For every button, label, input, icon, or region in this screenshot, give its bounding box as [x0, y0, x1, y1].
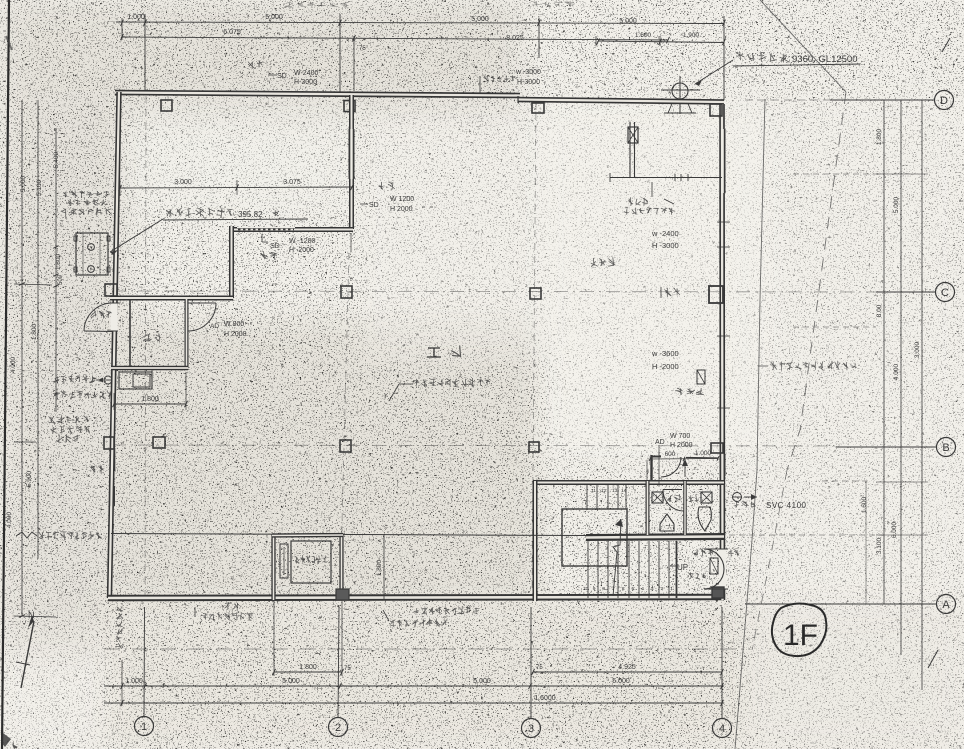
svg-text:1.000: 1.000 [695, 450, 712, 457]
svg-text:3: 3 [651, 586, 654, 592]
svg-text:4.000: 4.000 [10, 356, 17, 373]
svg-text:AD: AD [655, 439, 665, 446]
svg-text:4: 4 [641, 586, 644, 592]
svg-text:A: A [942, 599, 950, 611]
svg-text:SD: SD [369, 202, 379, 209]
svg-text:SD: SD [277, 73, 287, 80]
svg-text:500: 500 [58, 274, 64, 285]
svg-text:3.000: 3.000 [174, 179, 192, 186]
svg-text:3.075: 3.075 [283, 179, 301, 186]
svg-text:5.000: 5.000 [612, 678, 630, 685]
svg-text:5.000: 5.000 [471, 16, 489, 23]
svg-text:D: D [940, 95, 948, 107]
svg-text:1.600: 1.600 [861, 496, 868, 513]
svg-text:75: 75 [536, 665, 543, 671]
svg-text:12: 12 [601, 488, 607, 494]
svg-text:N: N [28, 610, 35, 620]
svg-text:w -3000: w -3000 [515, 69, 541, 76]
svg-text:1.800: 1.800 [141, 396, 159, 403]
svg-text:3.100: 3.100 [876, 537, 883, 554]
svg-text:5.000: 5.000 [265, 14, 283, 21]
svg-text:w -3600: w -3600 [651, 349, 679, 358]
svg-text:5: 5 [632, 586, 635, 592]
svg-text:6.000: 6.000 [891, 521, 898, 538]
svg-text:4: 4 [719, 723, 725, 735]
svg-text:1.800: 1.800 [31, 323, 38, 340]
svg-text:UP: UP [677, 563, 688, 572]
svg-text:W 1200: W 1200 [390, 196, 414, 203]
svg-text:2: 2 [661, 586, 664, 592]
svg-text:W 800: W 800 [224, 321, 244, 328]
svg-text:SVC 4100: SVC 4100 [766, 501, 807, 510]
svg-text:75: 75 [344, 666, 351, 672]
svg-text:3: 3 [528, 723, 534, 735]
svg-text:1.900: 1.900 [683, 32, 700, 39]
svg-text:2: 2 [335, 722, 341, 734]
svg-text:5.000: 5.000 [473, 678, 491, 685]
svg-text:8.025: 8.025 [506, 35, 524, 42]
svg-text:5.400: 5.400 [53, 151, 60, 168]
svg-text:5.100: 5.100 [36, 179, 43, 196]
svg-text:1.000: 1.000 [127, 14, 145, 21]
svg-text:C: C [941, 287, 949, 299]
svg-text:1.800: 1.800 [299, 664, 317, 671]
svg-text:B: B [942, 442, 949, 454]
svg-text:1F: 1F [783, 619, 818, 652]
svg-text:1: 1 [670, 586, 673, 592]
svg-text:H 2000: H 2000 [670, 442, 693, 449]
svg-text:H -2000: H -2000 [289, 247, 314, 254]
svg-text:1.600: 1.600 [635, 32, 652, 39]
svg-text:1.800: 1.800 [376, 559, 383, 576]
svg-text:W-2400: W-2400 [294, 70, 318, 77]
svg-text:H 2000: H 2000 [390, 206, 413, 213]
svg-text:5.900: 5.900 [26, 470, 33, 487]
svg-text:6.075: 6.075 [223, 29, 241, 36]
svg-text:5.000: 5.000 [20, 175, 27, 192]
svg-text:6: 6 [622, 586, 625, 592]
svg-text:4.000: 4.000 [6, 511, 13, 528]
svg-text:75: 75 [359, 46, 366, 52]
svg-text:8.00: 8.00 [876, 304, 883, 317]
svg-text:14: 14 [621, 488, 627, 494]
svg-text:AD: AD [210, 323, 219, 330]
svg-text:1.000: 1.000 [125, 678, 143, 685]
svg-text:H-3000: H-3000 [517, 79, 540, 86]
svg-text:1: 1 [141, 721, 147, 733]
svg-text:3.000: 3.000 [914, 341, 921, 358]
svg-text:1.800: 1.800 [876, 128, 883, 145]
svg-text:w -2400: w -2400 [651, 229, 679, 238]
svg-text:H -2000: H -2000 [652, 362, 679, 371]
svg-text:1.6000: 1.6000 [534, 695, 556, 702]
svg-text:SD: SD [270, 243, 280, 250]
svg-text:9360. GL12500: 9360. GL12500 [792, 54, 858, 65]
svg-text:W 700: W 700 [670, 433, 690, 440]
svg-text:5.000: 5.000 [893, 196, 900, 213]
svg-text:13: 13 [612, 488, 618, 494]
svg-text:5.000: 5.000 [282, 678, 300, 685]
svg-text:600: 600 [665, 451, 676, 458]
svg-text:9: 9 [593, 586, 596, 592]
svg-text:11: 11 [591, 488, 596, 494]
svg-text:5.000: 5.000 [619, 18, 637, 25]
svg-text:4.925: 4.925 [618, 664, 636, 671]
svg-text:H-3000: H-3000 [294, 79, 317, 86]
svg-text:H 2000: H 2000 [224, 331, 247, 338]
svg-text:H -3000: H -3000 [652, 241, 679, 250]
svg-text:10: 10 [583, 586, 589, 592]
svg-text:W -1200: W -1200 [289, 238, 316, 245]
svg-text:4.000: 4.000 [893, 363, 900, 380]
svg-text:1.800: 1.800 [55, 253, 62, 270]
svg-text:395.82: 395.82 [238, 210, 263, 219]
svg-text:8: 8 [602, 586, 605, 592]
